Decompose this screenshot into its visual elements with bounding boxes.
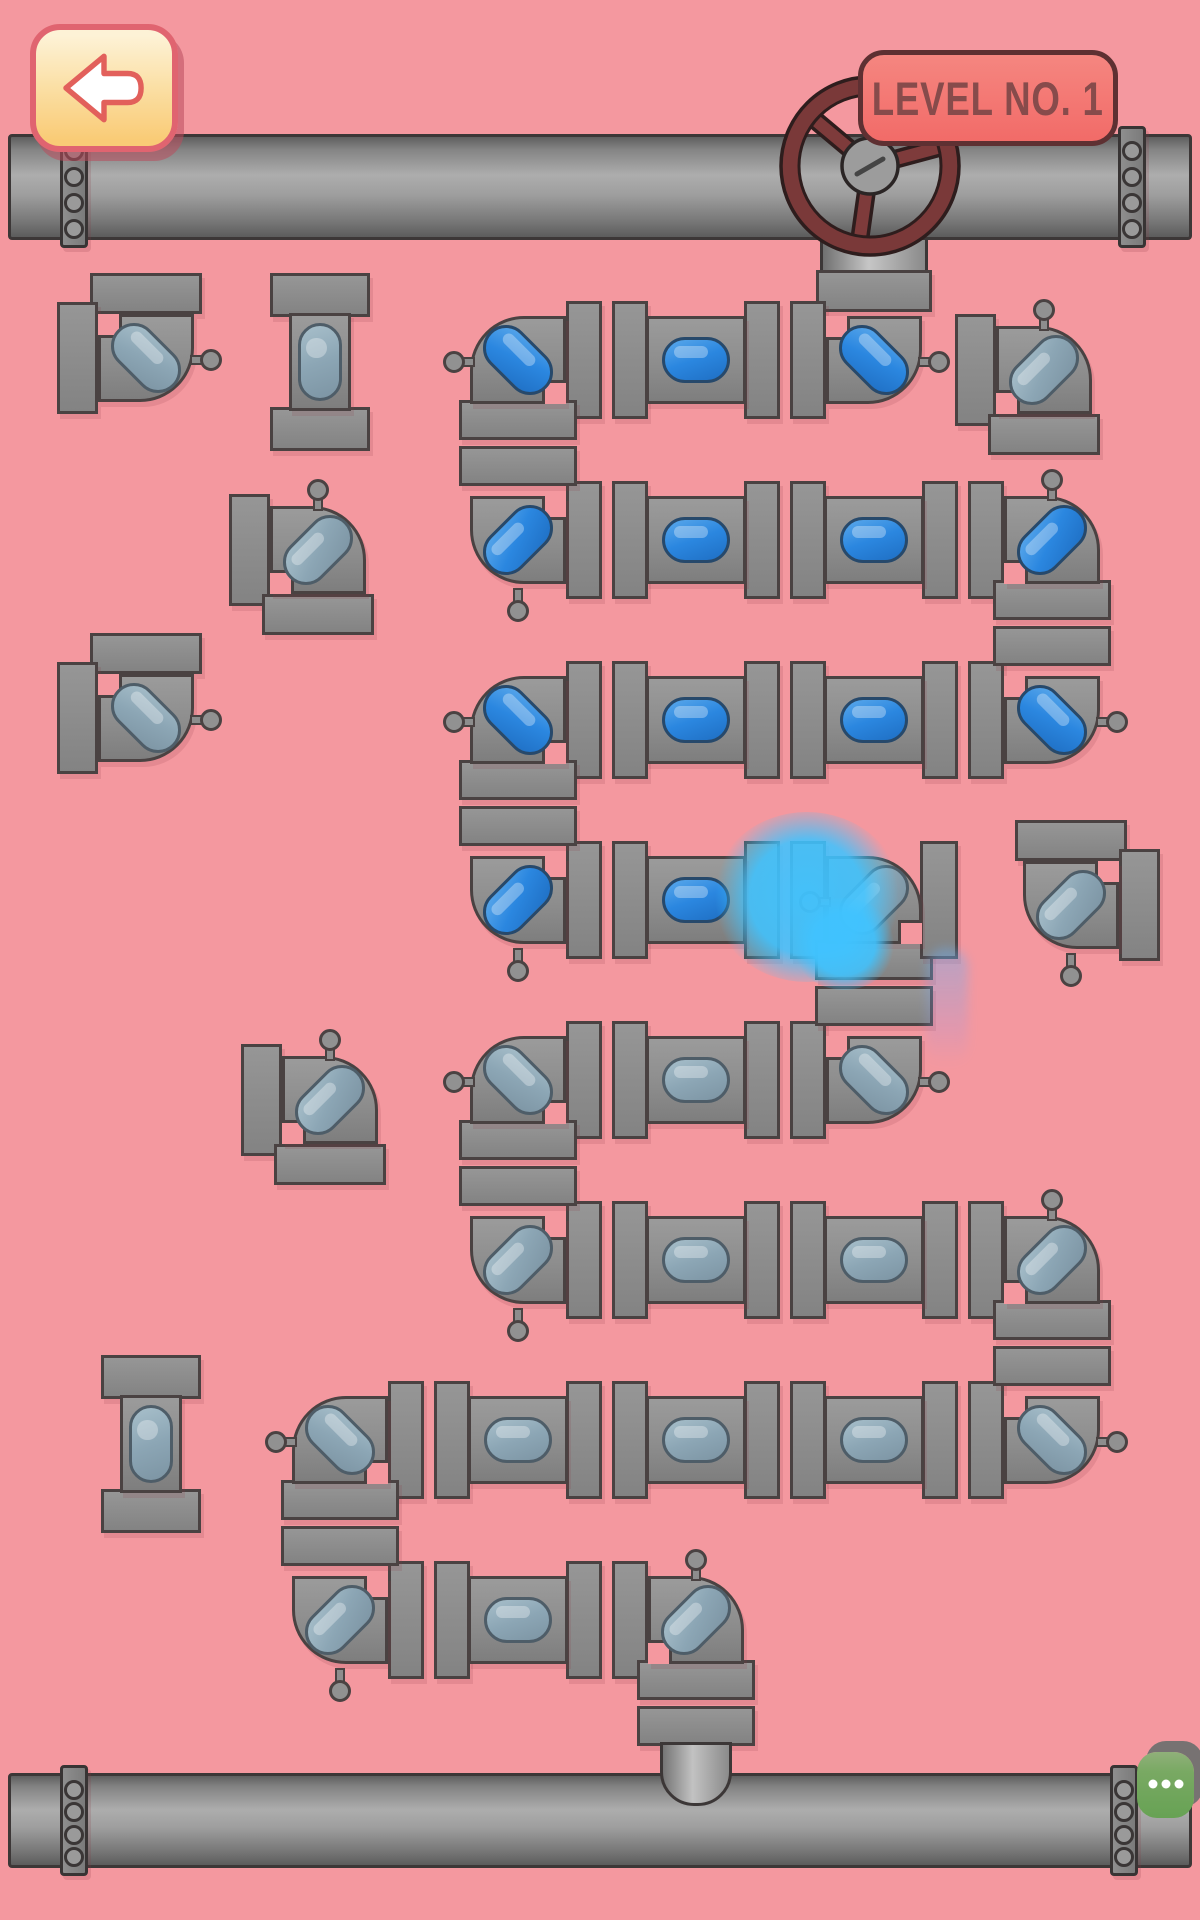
bolt-icon [64, 167, 84, 187]
bolt-icon [1114, 1802, 1134, 1822]
pipe-elbow [826, 1036, 922, 1124]
pipe-pin [200, 349, 222, 371]
pipe-pin [319, 1029, 341, 1051]
pipe-joint-flange [566, 481, 602, 599]
window-highlight [674, 886, 708, 897]
pipe-joint-flange [434, 1381, 470, 1499]
pipe-pin [685, 1549, 707, 1571]
window-highlight [852, 1426, 886, 1437]
pipe-joint-flange [566, 1561, 602, 1679]
pipe-joint-flange [790, 1201, 826, 1319]
pipe-straight [646, 1036, 746, 1124]
pipe-pin [443, 711, 465, 733]
pipe-scene [0, 0, 1200, 1920]
pipe-elbow [1004, 676, 1100, 764]
pipe-straight-vertical[interactable] [120, 1395, 182, 1493]
window-highlight [1043, 885, 1080, 922]
pipe-window [298, 323, 342, 401]
pipe-straight [468, 1576, 568, 1664]
pipe-elbow[interactable] [270, 506, 366, 594]
window-highlight [129, 690, 166, 727]
window-highlight [290, 530, 327, 567]
pipe-pin [1060, 965, 1082, 987]
pipe-end-flange [101, 1489, 201, 1533]
pipe-joint-flange [612, 1381, 648, 1499]
pipe-straight [646, 496, 746, 584]
bolt-icon [64, 1802, 84, 1822]
pipe-window [840, 1237, 908, 1283]
pipe-joint-flange [790, 481, 826, 599]
pipe-joint-flange [612, 661, 648, 779]
pipe-window [662, 337, 730, 383]
pipe-end-flange [955, 314, 996, 426]
pipe-joint-flange [922, 1381, 958, 1499]
window-highlight [857, 1052, 894, 1089]
pipe-window [662, 517, 730, 563]
pipe-elbow[interactable] [98, 674, 194, 762]
pipe-joint-flange [744, 661, 780, 779]
pipe-window [129, 1405, 173, 1483]
pipe-end-flange [57, 302, 98, 414]
pipe-joint-flange [281, 1480, 399, 1520]
pipe-joint-flange [790, 661, 826, 779]
pipe-elbow [470, 1216, 566, 1304]
pipe-joint-flange [993, 626, 1111, 666]
window-highlight [490, 880, 527, 917]
pipe-elbow [292, 1396, 388, 1484]
pipe-pin [1106, 1431, 1128, 1453]
bolt-icon [1122, 141, 1142, 161]
pipe-joint-flange [459, 806, 577, 846]
pipe-window [840, 517, 908, 563]
window-highlight [674, 706, 708, 717]
pipe-joint-flange [612, 841, 648, 959]
pipe-straight [468, 1396, 568, 1484]
pipe-joint-flange [459, 1166, 577, 1206]
pipe-pin [1041, 469, 1063, 491]
bolt-icon [1114, 1825, 1134, 1845]
valve-flange [816, 270, 932, 312]
back-button[interactable] [30, 24, 178, 152]
pipe-joint-flange [790, 1021, 826, 1139]
pipe-end-flange [274, 1144, 386, 1185]
pipe-joint-flange [790, 1381, 826, 1499]
window-highlight [496, 1606, 530, 1617]
pipe-end-flange [57, 662, 98, 774]
water-trail [926, 948, 968, 1066]
pipe-pin [507, 600, 529, 622]
window-highlight [852, 706, 886, 717]
pipe-elbow [1004, 1396, 1100, 1484]
pipe-end-flange [262, 594, 374, 635]
pipe-joint-flange [993, 1300, 1111, 1340]
pipe-elbow [470, 1036, 566, 1124]
window-highlight [312, 1600, 349, 1637]
bolt-icon [64, 219, 84, 239]
pipe-straight-vertical[interactable] [289, 313, 351, 411]
window-highlight [137, 1420, 158, 1440]
pipe-pin [928, 351, 950, 373]
bolt-icon [64, 193, 84, 213]
outlet-pipe [660, 1742, 732, 1806]
pipe-elbow [292, 1576, 388, 1664]
pipe-end-flange [270, 273, 370, 317]
pipe-straight [824, 676, 924, 764]
empty-slot-flange [920, 841, 958, 959]
pipe-joint-flange [815, 986, 933, 1026]
elbow-notch [898, 920, 922, 944]
pipe-window [840, 1417, 908, 1463]
window-highlight [852, 1246, 886, 1257]
pipe-end-flange [1119, 849, 1160, 961]
window-highlight [674, 526, 708, 537]
back-arrow-icon [58, 50, 150, 126]
bolt-icon [1122, 167, 1142, 187]
pipe-pin [507, 1320, 529, 1342]
window-highlight [490, 520, 527, 557]
pipe-end-flange [90, 273, 202, 314]
game-stage: LEVEL NO. 1 [0, 0, 1200, 1920]
pipe-joint-flange [566, 1201, 602, 1319]
pipe-pin [1106, 711, 1128, 733]
pipe-elbow [470, 676, 566, 764]
bolt-icon [64, 1847, 84, 1867]
pipe-joint-flange [968, 661, 1004, 779]
pipe-elbow [470, 496, 566, 584]
pipe-joint-flange [281, 1526, 399, 1566]
pipe-band [60, 1765, 88, 1876]
pipe-joint-flange [922, 661, 958, 779]
pipe-end-flange [90, 633, 202, 674]
window-highlight [1035, 1412, 1072, 1449]
pipe-straight [824, 496, 924, 584]
window-highlight [323, 1412, 360, 1449]
pipe-elbow [470, 856, 566, 944]
pipe-elbow[interactable] [98, 314, 194, 402]
pipe-joint-flange [993, 580, 1111, 620]
pipe-elbow [648, 1576, 744, 1664]
pipe-window [840, 697, 908, 743]
bolt-icon [1114, 1780, 1134, 1800]
pipe-pin [1041, 1189, 1063, 1211]
pipe-end-flange [988, 414, 1100, 455]
pipe-joint-flange [459, 1120, 577, 1160]
pipe-joint-flange [744, 1381, 780, 1499]
bottom-pipe [8, 1773, 1192, 1868]
pipe-pin [307, 479, 329, 501]
pipe-joint-flange [459, 446, 577, 486]
chat-button[interactable] [1137, 1752, 1194, 1818]
pipe-joint-flange [744, 301, 780, 419]
pipe-elbow [470, 316, 566, 404]
pipe-joint-flange [637, 1706, 755, 1746]
window-highlight [1024, 1240, 1061, 1277]
pipe-band [1118, 126, 1146, 248]
pipe-joint-flange [459, 400, 577, 440]
window-highlight [857, 332, 894, 369]
ellipsis-icon [1148, 1780, 1183, 1789]
pipe-joint-flange [922, 481, 958, 599]
pipe-joint-flange [434, 1561, 470, 1679]
pipe-joint-flange [612, 481, 648, 599]
top-pipe [8, 134, 1192, 240]
pipe-joint-flange [388, 1561, 424, 1679]
pipe-pin [443, 351, 465, 373]
window-highlight [501, 1052, 538, 1089]
window-highlight [496, 1426, 530, 1437]
pipe-pin [1033, 299, 1055, 321]
pipe-joint-flange [637, 1660, 755, 1700]
pipe-window [662, 1057, 730, 1103]
window-highlight [674, 1066, 708, 1077]
pipe-elbow [1004, 496, 1100, 584]
pipe-joint-flange [612, 1201, 648, 1319]
level-badge: LEVEL NO. 1 [858, 50, 1118, 146]
pipe-pin [507, 960, 529, 982]
bolt-icon [64, 1825, 84, 1845]
pipe-end-flange [241, 1044, 282, 1156]
pipe-band [1110, 1765, 1138, 1876]
window-highlight [306, 338, 327, 358]
pipe-window [662, 1417, 730, 1463]
window-highlight [1035, 692, 1072, 729]
pipe-joint-flange [612, 1021, 648, 1139]
pipe-pin [200, 709, 222, 731]
bolt-icon [1122, 193, 1142, 213]
pipe-straight [824, 1396, 924, 1484]
pipe-pin [329, 1680, 351, 1702]
window-highlight [852, 526, 886, 537]
pipe-straight [646, 1396, 746, 1484]
pipe-straight [824, 1216, 924, 1304]
pipe-joint-flange [744, 481, 780, 599]
window-highlight [302, 1080, 339, 1117]
pipe-window [484, 1417, 552, 1463]
pipe-joint-flange [744, 1021, 780, 1139]
pipe-joint-flange [790, 301, 826, 419]
pipe-joint-flange [459, 760, 577, 800]
bolt-icon [1114, 1847, 1134, 1867]
window-highlight [129, 330, 166, 367]
pipe-joint-flange [922, 1201, 958, 1319]
pipe-joint-flange [744, 1201, 780, 1319]
pipe-pin [928, 1071, 950, 1093]
bolt-icon [1122, 219, 1142, 239]
pipe-straight [646, 676, 746, 764]
pipe-pin [443, 1071, 465, 1093]
water-splash [792, 898, 896, 990]
pipe-joint-flange [566, 841, 602, 959]
pipe-window [484, 1597, 552, 1643]
pipe-elbow[interactable] [996, 326, 1092, 414]
window-highlight [674, 346, 708, 357]
pipe-end-flange [229, 494, 270, 606]
window-highlight [1024, 520, 1061, 557]
pipe-end-flange [1015, 820, 1127, 861]
pipe-window [662, 697, 730, 743]
window-highlight [668, 1600, 705, 1637]
bolt-icon [64, 1780, 84, 1800]
window-highlight [501, 692, 538, 729]
pipe-joint-flange [993, 1346, 1111, 1386]
pipe-straight [646, 316, 746, 404]
pipe-elbow [1004, 1216, 1100, 1304]
level-badge-text: LEVEL NO. 1 [872, 71, 1104, 126]
pipe-end-flange [270, 407, 370, 451]
pipe-pin [265, 1431, 287, 1453]
window-highlight [674, 1246, 708, 1257]
pipe-elbow [826, 316, 922, 404]
pipe-window [662, 1237, 730, 1283]
pipe-joint-flange [968, 1381, 1004, 1499]
pipe-elbow[interactable] [282, 1056, 378, 1144]
pipe-end-flange [101, 1355, 201, 1399]
window-highlight [674, 1426, 708, 1437]
window-highlight [1016, 350, 1053, 387]
pipe-elbow[interactable] [1023, 861, 1119, 949]
window-highlight [501, 332, 538, 369]
pipe-joint-flange [612, 301, 648, 419]
window-highlight [490, 1240, 527, 1277]
pipe-joint-flange [566, 1381, 602, 1499]
pipe-straight [646, 1216, 746, 1304]
